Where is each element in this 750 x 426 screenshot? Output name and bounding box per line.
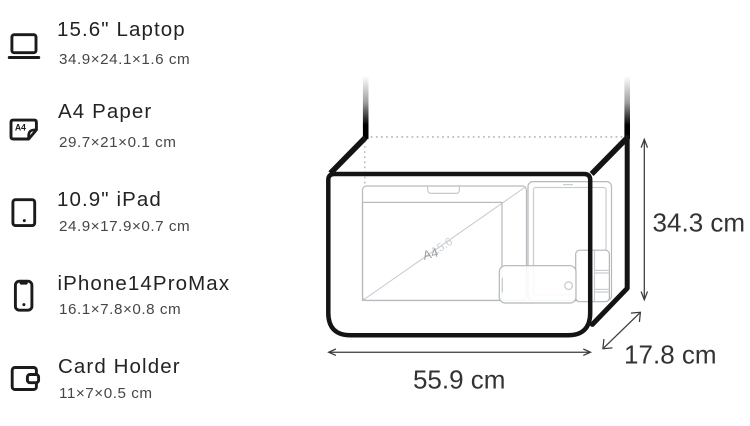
svg-text:55.9 cm: 55.9 cm	[413, 365, 506, 395]
svg-text:17.8 cm: 17.8 cm	[624, 340, 717, 370]
svg-text:34.3 cm: 34.3 cm	[653, 208, 746, 238]
svg-text:A4: A4	[15, 123, 26, 133]
